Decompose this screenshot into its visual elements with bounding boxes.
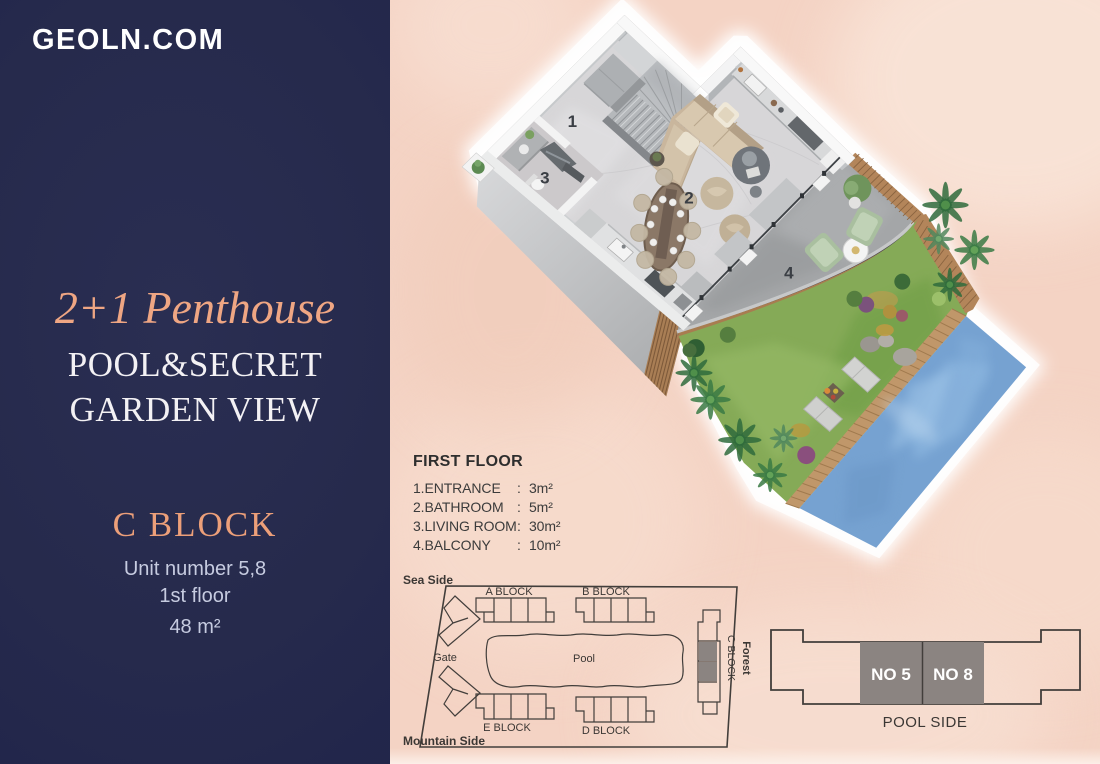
svg-text:Mountain Side: Mountain Side (403, 734, 485, 748)
svg-text:Sea Side: Sea Side (403, 573, 453, 587)
svg-text:E BLOCK: E BLOCK (483, 722, 531, 734)
svg-text:B BLOCK: B BLOCK (582, 586, 630, 598)
svg-text:4: 4 (784, 263, 794, 282)
svg-text:POOL SIDE: POOL SIDE (883, 714, 968, 731)
svg-text:A BLOCK: A BLOCK (485, 586, 533, 598)
svg-text:NO 5: NO 5 (871, 665, 911, 684)
svg-text:Gate: Gate (433, 652, 457, 664)
svg-text:D BLOCK: D BLOCK (582, 725, 631, 737)
svg-text:1: 1 (568, 112, 577, 131)
svg-text:NO 8: NO 8 (933, 665, 973, 684)
svg-text:C BLOCK: C BLOCK (725, 635, 737, 681)
svg-text:Forest: Forest (740, 641, 752, 675)
svg-text:3: 3 (540, 169, 549, 188)
svg-text:2: 2 (684, 189, 693, 208)
svg-text:Pool: Pool (573, 653, 595, 665)
